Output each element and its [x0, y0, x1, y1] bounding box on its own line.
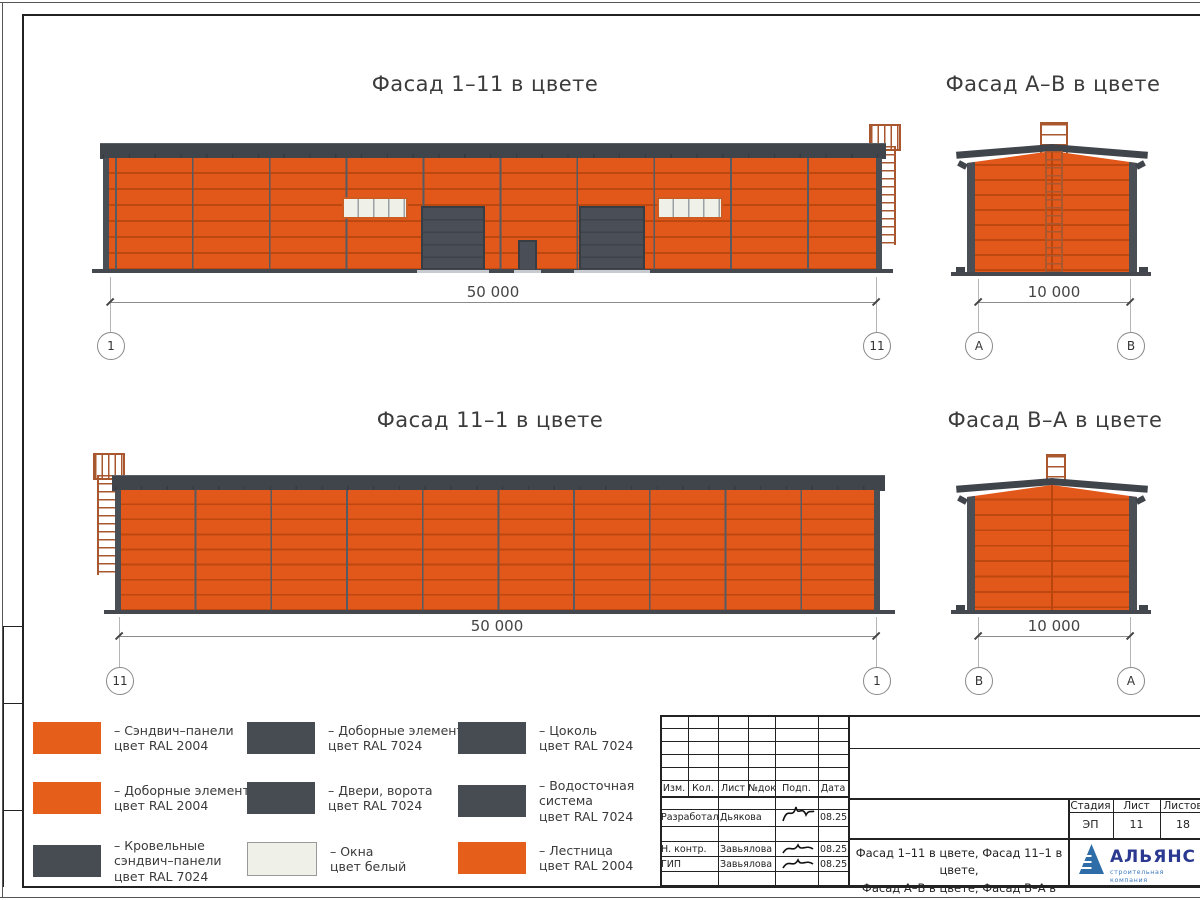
extension-line: [119, 617, 120, 671]
grid-axis-bubble: А: [1117, 667, 1145, 695]
tb-name: Завьялова: [720, 859, 772, 870]
tb-role: Разработал: [661, 812, 719, 823]
tb-line: [660, 809, 848, 810]
tb-line: [660, 754, 848, 755]
tb-date: 08.25: [820, 859, 847, 870]
corner-trim: [876, 158, 882, 270]
extension-line: [876, 617, 877, 671]
legend-label: – Цоколь цвет RAL 7024: [539, 723, 633, 754]
legend-swatch-dark: [247, 782, 315, 814]
legend-swatch-orange: [33, 722, 101, 754]
dimension-value: 10 000: [954, 283, 1154, 301]
tb-line: [660, 780, 848, 781]
sectional-gate: [579, 206, 645, 270]
gutter-elbow: [1135, 160, 1146, 170]
tb-sheets-header: Листов: [1160, 800, 1200, 812]
column-foot: [1139, 605, 1148, 610]
facade-b-a-title: Фасад В–А в цвете: [905, 408, 1200, 432]
legend-swatch-dark: [458, 722, 526, 754]
tb-role: ГИП: [661, 859, 681, 870]
tb-sheet-value: 11: [1113, 818, 1160, 831]
sectional-gate: [421, 206, 485, 270]
tb-col-header: Кол.: [688, 783, 718, 794]
dimension-value: 50 000: [397, 617, 597, 635]
grid-axis-bubble: В: [965, 667, 993, 695]
tb-line: [848, 748, 1200, 749]
tb-line: [660, 741, 848, 742]
signature: [780, 856, 816, 871]
dimension-value: 10 000: [954, 617, 1154, 635]
plinth-line: [951, 272, 1151, 276]
legend-item: – Лестница цвет RAL 2004: [458, 842, 633, 874]
margin-table-line: [3, 626, 4, 887]
grid-axis-bubble: 11: [106, 667, 134, 695]
extension-line: [876, 277, 877, 333]
corner-trim: [103, 158, 109, 270]
legend-item: – Доборные элементы цвет RAL 7024: [247, 722, 474, 754]
gate-apron: [574, 270, 650, 273]
grid-axis-bubble: В: [1117, 332, 1145, 360]
tb-sheet-header: Лист: [1113, 800, 1160, 812]
tb-name: Завьялова: [720, 844, 772, 855]
dimension-value: 50 000: [393, 283, 593, 301]
tb-sheets-value: 18: [1160, 818, 1200, 831]
margin-table-line: [3, 703, 23, 704]
company-logo-name: АЛЬЯНС: [1110, 847, 1196, 867]
legend-swatch-dark: [33, 845, 101, 877]
tb-line: [660, 728, 848, 729]
legend-item: – Окна цвет белый: [247, 842, 406, 876]
tb-stage-value: ЭП: [1068, 818, 1113, 831]
tb-line: [848, 715, 850, 887]
legend-swatch-white: [247, 842, 317, 876]
gutter-elbow: [957, 160, 968, 170]
corner-column: [967, 151, 975, 272]
window-band: [342, 197, 408, 219]
tb-line: [660, 841, 848, 842]
tb-line: [660, 796, 848, 798]
frame-left: [22, 14, 24, 888]
legend-label: – Доборные элементы цвет RAL 2004: [114, 783, 260, 814]
tb-line: [660, 856, 848, 857]
window-band: [657, 197, 723, 219]
tb-name: Дьякова: [720, 812, 762, 823]
legend-swatch-dark: [458, 785, 526, 817]
tb-line: [660, 871, 848, 872]
panel-seam: [1051, 485, 1053, 610]
tb-line: [848, 838, 1200, 840]
tb-line: [1068, 812, 1200, 813]
legend-swatch-orange: [33, 782, 101, 814]
door-apron: [514, 270, 541, 273]
facade-1-11-wall: [103, 158, 882, 270]
tb-col-header: Дата: [818, 783, 848, 794]
dimension-line: [110, 302, 876, 303]
legend-label: – Двери, ворота цвет RAL 7024: [328, 783, 433, 814]
column-foot: [956, 605, 965, 610]
facade-b-a-wall: [967, 485, 1137, 610]
legend-item: – Цоколь цвет RAL 7024: [458, 722, 633, 754]
facade-a-b-title: Фасад А–В в цвете: [903, 72, 1200, 96]
tb-col-header: Изм.: [660, 783, 688, 794]
sheet-name: Фасад 1–11 в цвете, Фасад 11–1 в цвете, …: [852, 845, 1066, 900]
dimension-line: [978, 302, 1130, 303]
plinth-line: [951, 610, 1151, 614]
extension-line: [110, 277, 111, 333]
corner-trim: [874, 490, 880, 611]
company-logo-subtitle: строительная компания: [1110, 868, 1200, 884]
legend-label: – Доборные элементы цвет RAL 7024: [328, 723, 474, 754]
company-logo-icon: [1078, 843, 1105, 875]
legend-item: – Кровельные сэндвич–панели цвет RAL 702…: [33, 838, 221, 884]
legend-label: – Окна цвет белый: [330, 844, 406, 875]
grid-axis-bubble: 11: [863, 332, 891, 360]
grid-axis-bubble: 1: [97, 332, 125, 360]
grid-axis-bubble: 1: [863, 667, 891, 695]
signature: [780, 801, 816, 825]
legend-item: – Двери, ворота цвет RAL 7024: [247, 782, 433, 814]
plinth-line: [104, 610, 895, 614]
column-foot: [1139, 267, 1148, 272]
facade-11-1-title: Фасад 11–1 в цвете: [290, 408, 690, 432]
sheet-edge-top: [0, 2, 1200, 3]
corner-column: [1129, 485, 1137, 610]
legend-swatch-dark: [247, 722, 315, 754]
gutter-elbow: [957, 495, 968, 505]
gate-apron: [417, 270, 489, 273]
legend-item: – Сэндвич–панели цвет RAL 2004: [33, 722, 234, 754]
plinth-line: [92, 269, 893, 273]
dimension-line: [978, 636, 1130, 637]
facade-11-1-wall: [115, 490, 880, 611]
margin-table-line: [3, 810, 23, 811]
facade-1-11-title: Фасад 1–11 в цвете: [285, 72, 685, 96]
drawing-sheet: Фасад 1–11 в цвете 50 000 1 11 Фасад А–В…: [0, 0, 1200, 900]
signature: [780, 841, 816, 856]
margin-table-line: [3, 626, 23, 627]
tb-date: 08.25: [820, 844, 847, 855]
frame-top: [22, 14, 1200, 16]
tb-stage-header: Стадия: [1068, 800, 1113, 812]
legend-label: – Водосточная система цвет RAL 7024: [539, 778, 634, 824]
tb-col-header: №док: [748, 783, 775, 794]
tb-role: Н. контр.: [661, 844, 707, 855]
entry-door: [518, 240, 537, 270]
column-foot: [956, 267, 965, 272]
corner-column: [1129, 151, 1137, 272]
tb-line: [660, 826, 848, 827]
tb-col-header: Подп.: [775, 783, 818, 794]
wall-ladder: [1045, 151, 1063, 272]
legend-item: – Водосточная система цвет RAL 7024: [458, 778, 634, 824]
legend-label: – Сэндвич–панели цвет RAL 2004: [114, 723, 234, 754]
corner-trim: [115, 490, 121, 611]
dimension-line: [119, 636, 876, 637]
grid-axis-bubble: А: [965, 332, 993, 360]
legend-item: – Доборные элементы цвет RAL 2004: [33, 782, 260, 814]
legend-swatch-orange: [458, 842, 526, 874]
corner-column: [967, 485, 975, 610]
tb-col-header: Лист: [718, 783, 748, 794]
gutter-elbow: [1135, 495, 1146, 505]
tb-line: [660, 767, 848, 768]
legend-label: – Кровельные сэндвич–панели цвет RAL 702…: [114, 838, 221, 884]
legend-label: – Лестница цвет RAL 2004: [539, 843, 633, 874]
tb-date: 08.25: [820, 812, 847, 823]
